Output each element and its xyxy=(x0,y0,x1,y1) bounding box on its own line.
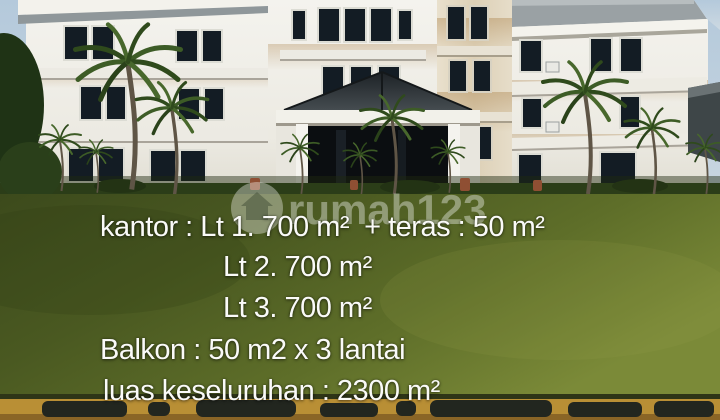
watermark-text: rumah123 xyxy=(288,186,486,233)
scene-photo: rumah123 xyxy=(0,0,720,420)
property-listing-photo: rumah123 kantor : Lt 1. 700 m² + teras :… xyxy=(0,0,720,420)
rumah123-watermark: rumah123 xyxy=(231,182,486,234)
painted-kerb xyxy=(0,394,720,420)
